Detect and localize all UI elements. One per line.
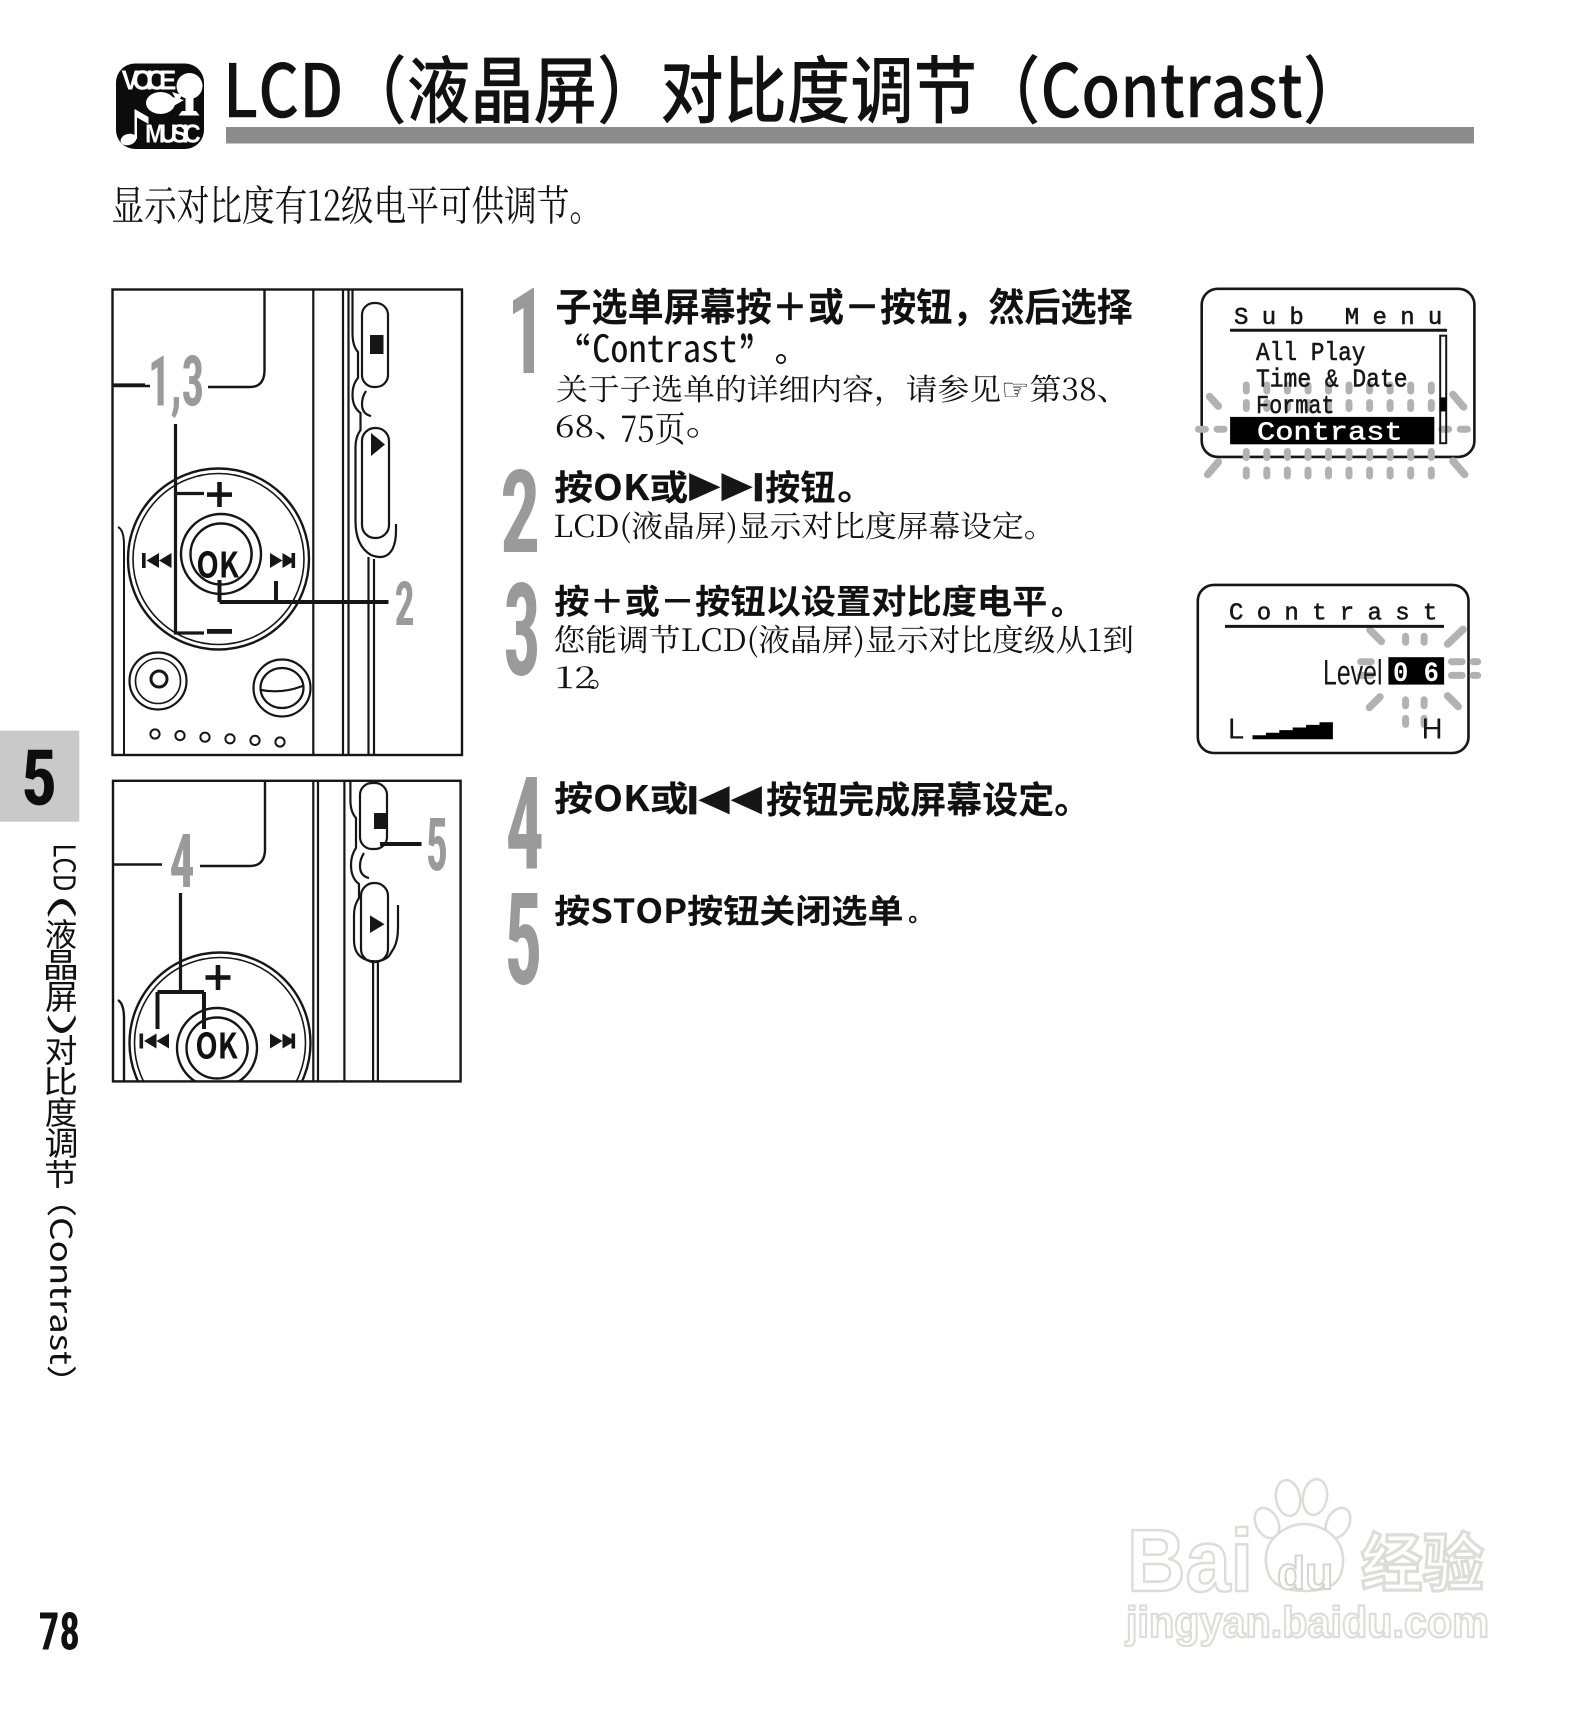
svg-text:Time & Date: Time & Date xyxy=(1256,365,1408,395)
svg-text:Level: Level xyxy=(1323,654,1383,693)
svg-text:Sub Menu: Sub Menu xyxy=(1234,305,1456,332)
svg-text:jingyan.baidu.com: jingyan.baidu.com xyxy=(1125,1598,1489,1647)
svg-text:All Play: All Play xyxy=(1256,338,1366,368)
svg-text:VOICE: VOICE xyxy=(122,65,177,96)
svg-text:H: H xyxy=(1422,713,1443,745)
svg-text:Contrast: Contrast xyxy=(1229,601,1451,628)
svg-text:L: L xyxy=(1228,713,1244,745)
svg-text:0 6: 0 6 xyxy=(1393,659,1439,690)
svg-text:Bai: Bai xyxy=(1127,1511,1253,1610)
svg-text:MUSIC: MUSIC xyxy=(145,120,201,149)
svg-text:Contrast: Contrast xyxy=(1257,417,1403,447)
svg-text:du: du xyxy=(1277,1547,1333,1599)
